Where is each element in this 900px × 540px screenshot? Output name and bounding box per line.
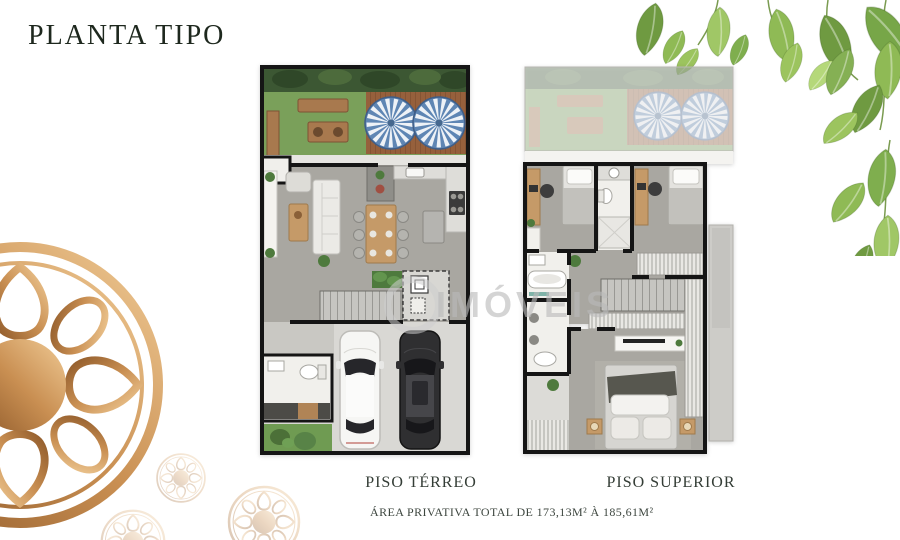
garage <box>262 322 468 453</box>
parasol-icon <box>365 97 417 149</box>
toilet <box>534 352 556 366</box>
rosette-ornament-icon <box>0 235 170 535</box>
brochure-page: PLANTA TIPO <box>0 0 900 540</box>
sink <box>609 168 619 178</box>
garden-bench <box>298 99 348 112</box>
sink <box>268 361 284 371</box>
single-bed <box>669 166 703 224</box>
double-bed <box>605 365 677 449</box>
fixture <box>529 335 539 345</box>
upper-floor-label: PISO SUPERIOR <box>580 474 762 492</box>
desk-chair <box>648 182 662 196</box>
stove <box>449 191 465 215</box>
stairs <box>601 279 697 311</box>
bathtub <box>528 271 566 288</box>
white-car <box>336 331 384 449</box>
plant-icon <box>547 379 559 391</box>
area-note: ÁREA PRIVATIVA TOTAL DE 173,13M² À 185,6… <box>370 505 653 520</box>
counter <box>264 403 330 419</box>
parasol-icon <box>413 97 465 149</box>
garden-plank <box>267 111 279 157</box>
closet-rack <box>589 313 699 329</box>
wardrobe <box>637 253 703 275</box>
green-patch <box>262 424 332 453</box>
fridge <box>423 211 444 243</box>
stairs <box>320 291 402 321</box>
ground-floor-label: PISO TÉRREO <box>330 474 512 492</box>
bedroom-2 <box>635 166 703 275</box>
dining-table <box>366 205 396 263</box>
ground-floor-plan <box>260 65 470 455</box>
sofa <box>313 180 340 254</box>
dark-car <box>396 331 444 449</box>
rosette-faded-icon <box>99 508 167 540</box>
plant-icon <box>318 255 330 267</box>
rosette-faded-icon <box>155 452 207 504</box>
desk <box>527 169 540 225</box>
kitchen-island <box>367 166 394 201</box>
plant-icon <box>265 248 275 258</box>
shared-bathroom <box>596 164 633 250</box>
side-walkway <box>709 225 733 441</box>
desk <box>635 169 648 225</box>
single-bed <box>563 166 596 224</box>
desk-chair <box>540 184 554 198</box>
tv-console <box>264 171 277 257</box>
fixture <box>529 313 539 323</box>
plant-icon <box>265 172 275 182</box>
toilet <box>300 365 318 379</box>
dresser-tv <box>615 336 685 351</box>
page-title: PLANTA TIPO <box>28 20 225 52</box>
sink <box>529 255 545 265</box>
left-bathrooms <box>525 252 569 452</box>
upper-floor-plan <box>523 65 735 455</box>
coffee-table <box>289 204 308 241</box>
armchair <box>286 172 311 192</box>
bathroom <box>262 355 332 421</box>
shelf <box>527 228 540 250</box>
optional-room-dashed <box>403 271 449 320</box>
rosette-faded-icon <box>226 484 302 540</box>
sink <box>406 168 424 177</box>
garden-table <box>308 122 348 142</box>
garden <box>262 67 470 165</box>
closet <box>685 279 703 417</box>
plant-icon <box>527 219 535 227</box>
